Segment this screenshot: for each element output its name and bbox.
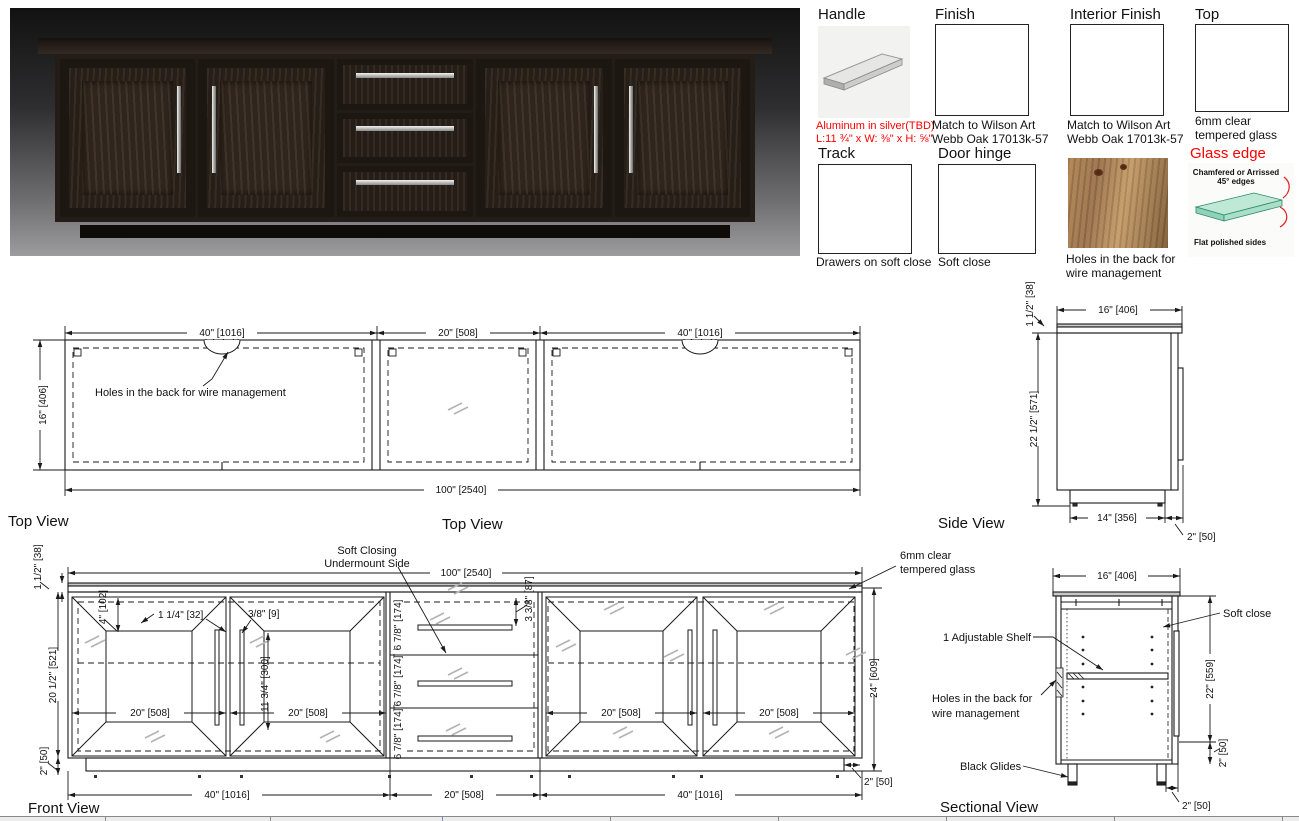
view-title: Top View	[8, 513, 69, 530]
sectional-details	[1056, 609, 1168, 760]
drawer	[337, 59, 474, 110]
dim-label: 20" [508]	[130, 708, 170, 719]
spec-title-glass-edge: Glass edge	[1190, 145, 1266, 162]
top-view-hidden-lines	[73, 348, 852, 462]
dim-label: 16" [406]	[1098, 305, 1138, 316]
dim-label: 16" [406]	[38, 385, 49, 425]
dim-label: 20" [508]	[601, 708, 641, 719]
dim-label: 22 1/2" [571]	[1029, 391, 1040, 448]
dim-label: 40" [1016]	[204, 790, 249, 801]
track-note: Drawers on soft close	[816, 255, 956, 269]
spec-title-finish: Finish	[935, 6, 975, 23]
wire-holes-note: Holes in the back for wire management	[1066, 252, 1196, 280]
glass-symbol	[448, 403, 468, 414]
dim-label: 24" [609]	[869, 658, 880, 698]
dim-label: 2" [50]	[1182, 801, 1211, 812]
cabinet-plinth	[80, 225, 730, 238]
view-title: Front View	[28, 800, 100, 817]
dim-label: 3 3/8" [87]	[524, 576, 535, 621]
dim-label: 2" [50]	[39, 746, 50, 775]
top-swatch	[1195, 24, 1289, 112]
glass-edge-image: Chamfered or Arrissed 45° edges Flat pol…	[1188, 163, 1294, 257]
dim-label: 2" [50]	[1187, 532, 1216, 543]
dim-label: 11 3/4" [300]	[260, 656, 271, 712]
glass-edge-label: Flat polished sides	[1194, 238, 1267, 247]
dim-label: 20" [508]	[288, 708, 328, 719]
dim-label: 6 7/8" [174]	[393, 708, 404, 759]
spec-title-door-hinge: Door hinge	[938, 145, 1011, 162]
dim-label: 100" [2540]	[436, 485, 487, 496]
sectional-view-drawing: 16" [406] 22" [559] 2" [50] 2" [50] Soft…	[920, 556, 1299, 821]
side-view-outline	[1057, 324, 1183, 506]
dim-label: 40" [1016]	[677, 790, 722, 801]
handle-image	[818, 26, 910, 118]
door-hinge-note: Soft close	[938, 255, 1058, 269]
soft-close-note: Soft close	[1223, 608, 1271, 620]
wire-note: wire management	[931, 708, 1019, 720]
sectional-dimensions	[1023, 568, 1220, 802]
dim-label: 100" [2540]	[441, 568, 492, 579]
view-title: Sectional View	[940, 799, 1038, 816]
spec-sheet: Handle Aluminum in silver(TBD) L:11 ¾" x…	[0, 0, 1299, 821]
dim-label: 2" [50]	[1218, 738, 1229, 767]
door	[615, 59, 750, 217]
cabinet-top-slab	[38, 38, 772, 54]
track-swatch	[818, 164, 912, 254]
door	[60, 59, 195, 217]
front-view-drawing: 100" [2540] 1 1/2" [38] 20 1/2" [521] 2"…	[0, 535, 1000, 821]
interior-finish-note: Match to Wilson Art Webb Oak 17013k-57	[1067, 118, 1187, 146]
dim-label: 16" [406]	[1097, 571, 1137, 582]
dim-label: 2" [50]	[864, 777, 893, 788]
door-handle	[212, 86, 216, 173]
table-edge	[0, 816, 1299, 821]
door	[476, 59, 611, 217]
dim-label: 14" [356]	[1097, 513, 1137, 524]
dim-label: 6 7/8" [174]	[393, 655, 404, 706]
drawer	[337, 166, 474, 217]
finish-note: Match to Wilson Art Webb Oak 17013k-57	[932, 118, 1052, 146]
drawer	[337, 113, 474, 164]
spec-title-track: Track	[818, 145, 855, 162]
finish-swatch	[935, 24, 1029, 116]
top-view-outline	[65, 340, 860, 470]
dim-label: 20" [508]	[759, 708, 799, 719]
drawer-handle	[356, 73, 453, 78]
dim-label: 6 7/8" [174]	[393, 599, 404, 650]
dim-label: 40" [1016]	[677, 328, 722, 339]
dim-label: 20" [508]	[438, 328, 478, 339]
door-handle	[177, 86, 181, 173]
dim-label: 20" [508]	[444, 790, 484, 801]
soft-closing-note: Undermount Side	[324, 558, 410, 570]
wire-note: Holes in the back for	[932, 693, 1033, 705]
glass-symbols	[85, 583, 866, 742]
glass-edge-label: Chamfered or Arrissed	[1193, 168, 1280, 177]
dim-label: 1 1/2" [38]	[33, 544, 44, 589]
drawer-handle	[356, 126, 453, 131]
dim-label: 3/8" [9]	[248, 609, 280, 620]
front-view-feet	[94, 775, 839, 778]
dim-label: 4" [102]	[98, 590, 109, 624]
handle-note: Aluminum in silver(TBD) L:11 ¾" x W: ⅜" …	[816, 120, 936, 146]
dim-label: 22" [559]	[1205, 659, 1216, 699]
corner-blocks	[74, 349, 852, 356]
door-hinge-swatch	[938, 164, 1036, 254]
top-note: 6mm clear tempered glass	[1195, 114, 1295, 142]
spec-title-top: Top	[1195, 6, 1219, 23]
product-photo	[10, 8, 800, 256]
view-title: Top View	[442, 516, 503, 533]
door-handle	[594, 86, 598, 173]
right-door-pair	[476, 59, 750, 217]
wire-holes-image	[1068, 158, 1168, 248]
door-handle	[629, 86, 633, 173]
dim-label: 20 1/2" [521]	[48, 647, 59, 704]
drawer-stack	[337, 59, 474, 217]
view-title: Side View	[938, 515, 1005, 532]
cabinet-body	[55, 54, 755, 222]
dim-label: 1 1/4" [32]	[158, 610, 203, 621]
wire-hole	[1094, 169, 1103, 176]
wire-note: Holes in the back for wire management	[95, 387, 286, 399]
shelf-pin-holes	[1082, 636, 1154, 716]
front-view-drawers	[390, 625, 538, 741]
side-view-drawing: 16" [406] 1 1/2" [38] 22 1/2" [571] 14" …	[920, 280, 1299, 550]
glass-edge-label: 45° edges	[1217, 177, 1255, 186]
top-view-drawing: 40" [1016] 20" [508] 40" [1016] 16" [406…	[0, 280, 910, 536]
left-door-pair	[60, 59, 334, 217]
sectional-outline	[1053, 592, 1180, 785]
door	[198, 59, 333, 217]
interior-finish-swatch	[1070, 24, 1164, 116]
glides-note: Black Glides	[960, 761, 1022, 773]
spec-title-interior-finish: Interior Finish	[1070, 6, 1161, 23]
shelf-note: 1 Adjustable Shelf	[943, 632, 1032, 644]
sectional-labels: 16" [406] 22" [559] 2" [50] 2" [50] Soft…	[931, 570, 1271, 816]
drawer-handle	[356, 180, 453, 185]
dim-label: 1 1/2" [38]	[1025, 281, 1036, 326]
dim-label: 40" [1016]	[199, 328, 244, 339]
side-view-dimensions	[1032, 306, 1183, 535]
spec-title-handle: Handle	[818, 6, 866, 23]
soft-closing-note: Soft Closing	[337, 545, 396, 557]
